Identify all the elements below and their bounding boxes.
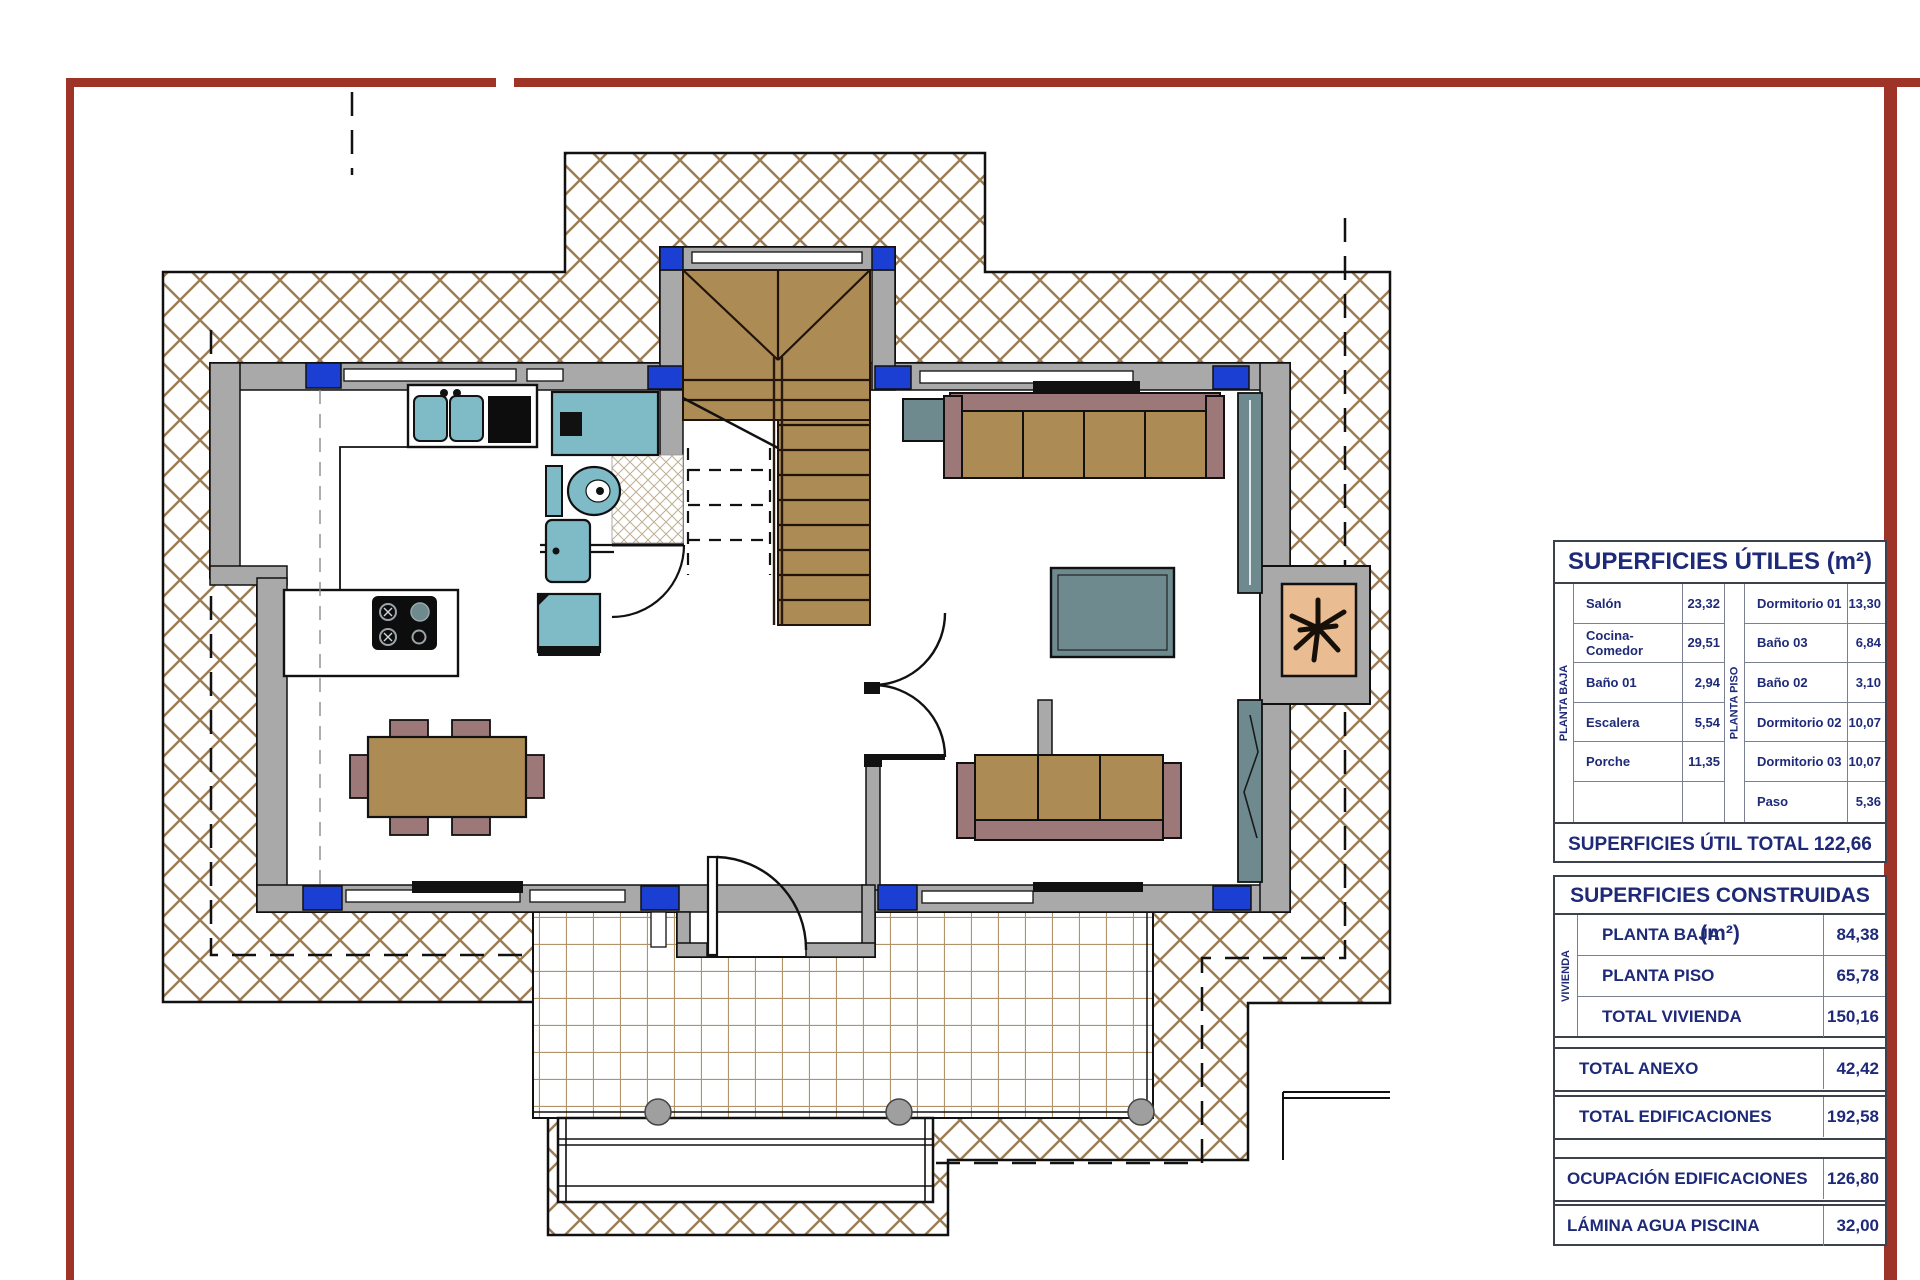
room-area: 3,10 [1848,663,1885,703]
construida-label: TOTAL EDIFICACIONES [1555,1097,1823,1137]
construida-label: PLANTA BAJA [1578,915,1823,955]
construida-value: 32,00 [1823,1206,1885,1246]
bath-floor-hatch [612,455,683,543]
utiles-table-body: PLANTA BAJA Salón 23,32 Cocina-Comedor 2… [1555,584,1885,824]
room-label: Baño 03 [1745,624,1848,664]
room-area [1683,782,1724,822]
room-area: 2,94 [1683,663,1724,703]
room-label: Baño 01 [1574,663,1683,703]
room-area: 10,07 [1848,703,1885,743]
vivienda-vertical-label: VIVIENDA [1555,915,1578,1036]
construida-value: 126,80 [1823,1159,1885,1199]
construidas-table-title: SUPERFICIES CONSTRUIDAS (m²) [1555,877,1885,915]
construida-label: OCUPACIÓN EDIFICACIONES [1555,1159,1823,1199]
construida-value: 65,78 [1823,956,1885,996]
room-area: 11,35 [1683,742,1724,782]
sofa-small [957,755,1181,840]
dining-table [368,737,526,817]
toilet-icon [546,466,620,516]
planta-piso-vertical-label: PLANTA PISO [1724,584,1745,822]
room-area: 6,84 [1848,624,1885,664]
construida-value: 84,38 [1823,915,1885,955]
room-label: Paso [1745,782,1848,822]
side-table [903,399,944,441]
hand-basin [546,520,590,582]
vivienda-section: VIVIENDA PLANTA BAJA 84,38 PLANTA PISO 6… [1555,913,1885,1038]
room-area: 10,07 [1848,742,1885,782]
sideboard-left [412,881,523,893]
room-label [1574,782,1683,822]
room-area: 13,30 [1848,584,1885,624]
ocupacion-section: OCUPACIÓN EDIFICACIONES 126,80 [1555,1157,1885,1202]
room-label: Salón [1574,584,1683,624]
superficies-construidas-table: SUPERFICIES CONSTRUIDAS (m²) VIVIENDA PL… [1553,875,1887,1246]
total-edificaciones-section: TOTAL EDIFICACIONES 192,58 [1555,1095,1885,1140]
room-label: Dormitorio 02 [1745,703,1848,743]
washing-machine [552,392,658,455]
construida-value: 150,16 [1823,997,1885,1037]
garden-step-edge [1283,1092,1390,1160]
porch-steps [558,1118,933,1202]
sink-icon [414,396,447,441]
dishwasher [538,594,600,656]
construida-label: LÁMINA AGUA PISCINA [1555,1206,1823,1246]
planta-baja-rows: Salón 23,32 Cocina-Comedor 29,51 Baño 01… [1574,584,1724,822]
construida-value: 42,42 [1823,1049,1885,1089]
planta-piso-rows: Dormitorio 01 13,30 Baño 03 6,84 Baño 02… [1745,584,1885,822]
cooktop-icon [372,596,437,650]
construida-label: TOTAL VIVIENDA [1578,997,1823,1037]
border-notch [496,78,514,87]
total-anexo-section: TOTAL ANEXO 42,42 [1555,1047,1885,1092]
room-label: Baño 02 [1745,663,1848,703]
room-area: 5,54 [1683,703,1724,743]
superficies-utiles-table: SUPERFICIES ÚTILES (m²) PLANTA BAJA Saló… [1553,540,1887,863]
planta-baja-vertical-label: PLANTA BAJA [1555,584,1574,822]
sofa-large [944,393,1224,478]
utiles-total-line: SUPERFICIES ÚTIL TOTAL 122,66 m² [1555,824,1885,865]
construida-label: PLANTA PISO [1578,956,1823,996]
kitchen-island [284,590,458,676]
room-area: 5,36 [1848,782,1885,822]
chimney-niche [1260,566,1370,704]
construida-value: 192,58 [1823,1097,1885,1137]
room-label: Dormitorio 03 [1745,742,1848,782]
room-label: Escalera [1574,703,1683,743]
porch-door-threshold [1033,882,1143,892]
room-label: Porche [1574,742,1683,782]
construida-label: TOTAL ANEXO [1555,1049,1823,1089]
room-area: 29,51 [1683,624,1724,664]
room-label: Dormitorio 01 [1745,584,1848,624]
room-area: 23,32 [1683,584,1724,624]
coffee-table [1051,568,1174,657]
dining-set [350,720,544,835]
lamina-agua-section: LÁMINA AGUA PISCINA 32,00 [1555,1204,1885,1248]
utiles-table-title: SUPERFICIES ÚTILES (m²) [1555,542,1885,584]
room-label: Cocina-Comedor [1574,624,1683,664]
kitchen-sink-counter [408,385,537,447]
